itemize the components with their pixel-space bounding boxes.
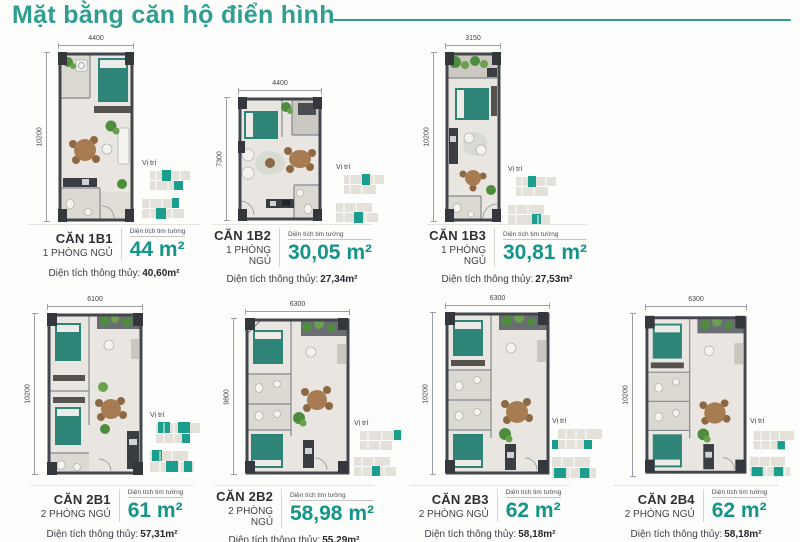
- title-underline: [333, 19, 791, 21]
- dimension-width: 6300: [245, 311, 350, 312]
- dimension-height: 10200: [34, 313, 35, 475]
- tim-tuong-label: Diện tích tim tường: [288, 231, 372, 240]
- unit-info-1b2: CĂN 1B2 1 PHÒNG NGỦ Diện tích tim tường …: [212, 228, 372, 285]
- dimension-width: 6300: [645, 306, 747, 307]
- dimension-height: 10200: [433, 52, 434, 222]
- dimension-width: 4400: [238, 90, 322, 91]
- unit-info-2b3: CĂN 2B3 2 PHÒNG NGỦ Diện tích tim tường …: [410, 489, 570, 540]
- vitri-label: Vị trí: [142, 160, 192, 167]
- unit-info-2b4: CĂN 2B4 2 PHÒNG NGỦ Diện tích tim tường …: [613, 489, 779, 540]
- unit-info-1b3: CĂN 1B3 1 PHÒNG NGỦ Diện tích tim tường …: [427, 228, 587, 285]
- unit-info-1b1: CĂN 1B1 1 PHÒNG NGỦ Diện tích tim tường …: [30, 228, 198, 279]
- floor-plan-graphic-2b3: [445, 312, 550, 475]
- location-minimap: Vị trí: [148, 412, 204, 475]
- building-position-icon: [550, 427, 606, 481]
- unit-name: CĂN 2B2: [214, 489, 273, 504]
- unit-info-2b1: CĂN 2B1 2 PHÒNG NGỦ Diện tích tim tường …: [32, 489, 192, 540]
- unit-area: 58,98 m²: [290, 503, 374, 525]
- unit-name: CĂN 2B1: [41, 492, 111, 507]
- divider: [410, 485, 570, 486]
- dimension-width: 6100: [47, 306, 143, 307]
- divider: [494, 228, 495, 267]
- tim-tuong-label: Diện tích tim tường: [128, 489, 184, 498]
- unit-area: 44 m²: [130, 239, 186, 261]
- floor-plan-graphic-1b1: [58, 52, 134, 222]
- unit-name: CĂN 2B3: [419, 492, 489, 507]
- location-minimap: Vị trí: [748, 418, 796, 481]
- location-minimap: Vị trí: [506, 166, 558, 229]
- vitri-label: Vị trí: [552, 418, 606, 425]
- unit-name: CĂN 2B4: [625, 492, 695, 507]
- divider: [613, 485, 779, 486]
- dimension-height: 10200: [46, 52, 47, 222]
- vitri-label: Vị trí: [750, 418, 796, 425]
- tim-tuong-label: Diện tích tim tường: [130, 228, 186, 237]
- unit-name: CĂN 1B1: [43, 231, 113, 246]
- clear-area-line: Diện tích thông thủy:40,60m²: [30, 268, 198, 279]
- building-position-icon: [506, 175, 558, 229]
- divider: [30, 485, 194, 486]
- dimension-height: 10200: [632, 313, 633, 477]
- divider: [279, 228, 280, 267]
- building-position-icon: [334, 173, 386, 227]
- unit-info-2b2: CĂN 2B2 2 PHÒNG NGỦ Diện tích tim tường …: [214, 489, 374, 542]
- tim-tuong-label: Diện tích tim tường: [503, 231, 587, 240]
- unit-area: 30,05 m²: [288, 242, 372, 264]
- tim-tuong-label: Diện tích tim tường: [506, 489, 562, 498]
- clear-area-line: Diện tích thông thủy:57,31m²: [32, 529, 192, 540]
- tim-tuong-label: Diện tích tim tường: [712, 489, 768, 498]
- unit-area: 30,81 m²: [503, 242, 587, 264]
- divider: [427, 224, 587, 225]
- vitri-label: Vị trí: [336, 164, 386, 171]
- divider: [28, 224, 200, 225]
- bed-icon: [455, 88, 489, 120]
- dimension-width: 6300: [445, 305, 550, 306]
- unit-bedrooms: 2 PHÒNG NGỦ: [419, 509, 489, 520]
- dimension-height: 9800: [233, 318, 234, 475]
- unit-bedrooms: 2 PHÒNG NGỦ: [625, 509, 695, 520]
- divider: [281, 489, 282, 528]
- building-position-icon: [748, 427, 796, 481]
- building-position-icon: [140, 169, 192, 223]
- bed-icon: [453, 434, 483, 468]
- unit-area: 61 m²: [128, 500, 184, 522]
- floor-plan-graphic-2b2: [245, 318, 350, 475]
- vitri-label: Vị trí: [508, 166, 558, 173]
- unit-bedrooms: 1 PHÒNG NGỦ: [43, 248, 113, 259]
- page-title: Mặt bằng căn hộ điển hình: [12, 1, 335, 30]
- bed-icon: [55, 323, 81, 361]
- divider: [703, 489, 704, 522]
- bed-icon: [251, 434, 283, 468]
- bed-icon: [244, 111, 278, 139]
- unit-name: CĂN 1B3: [427, 228, 486, 243]
- divider: [119, 489, 120, 522]
- clear-area-line: Diện tích thông thủy:58,18m²: [613, 529, 779, 540]
- unit-bedrooms: 2 PHÒNG NGỦ: [214, 506, 273, 528]
- dimension-width: 4400: [58, 45, 134, 46]
- unit-bedrooms: 2 PHÒNG NGỦ: [41, 509, 111, 520]
- floor-plan-sheet: Mặt bằng căn hộ điển hình 4400 10200: [0, 0, 800, 542]
- location-minimap: Vị trí: [352, 420, 404, 479]
- clear-area-line: Diện tích thông thủy:27,34m²: [212, 274, 372, 285]
- bed-icon: [55, 407, 81, 445]
- bed-icon: [98, 58, 128, 102]
- floor-plan-graphic-1b3: [445, 52, 501, 222]
- floor-plan-graphic-2b4: [645, 313, 747, 477]
- location-minimap: Vị trí: [334, 164, 386, 227]
- clear-area-line: Diện tích thông thủy:58,18m²: [410, 529, 570, 540]
- building-position-icon: [352, 429, 404, 479]
- location-minimap: Vị trí: [140, 160, 192, 223]
- unit-bedrooms: 1 PHÒNG NGỦ: [427, 245, 486, 267]
- floor-plan-graphic-1b2: [238, 97, 322, 221]
- clear-area-line: Diện tích thông thủy:27,53m²: [427, 274, 587, 285]
- clear-area-line: Diện tích thông thủy:55,29m²: [214, 535, 374, 542]
- unit-area: 62 m²: [506, 500, 562, 522]
- unit-bedrooms: 1 PHÒNG NGỦ: [212, 245, 271, 267]
- dimension-height: 7300: [226, 97, 227, 221]
- dimension-height: 10200: [432, 312, 433, 475]
- divider: [212, 224, 372, 225]
- vitri-label: Vị trí: [354, 420, 404, 427]
- bed-icon: [453, 320, 483, 356]
- dimension-width: 3150: [445, 45, 501, 46]
- tim-tuong-label: Diện tích tim tường: [290, 492, 374, 501]
- unit-name: CĂN 1B2: [212, 228, 271, 243]
- bed-icon: [653, 434, 682, 467]
- location-minimap: Vị trí: [550, 418, 606, 481]
- building-position-icon: [148, 421, 204, 475]
- vitri-label: Vị trí: [150, 412, 204, 419]
- floor-plan-graphic-2b1: [47, 313, 143, 475]
- bed-icon: [653, 324, 682, 359]
- bed-icon: [253, 330, 283, 364]
- divider: [497, 489, 498, 522]
- unit-area: 62 m²: [712, 500, 768, 522]
- divider: [121, 228, 122, 261]
- divider: [214, 485, 374, 486]
